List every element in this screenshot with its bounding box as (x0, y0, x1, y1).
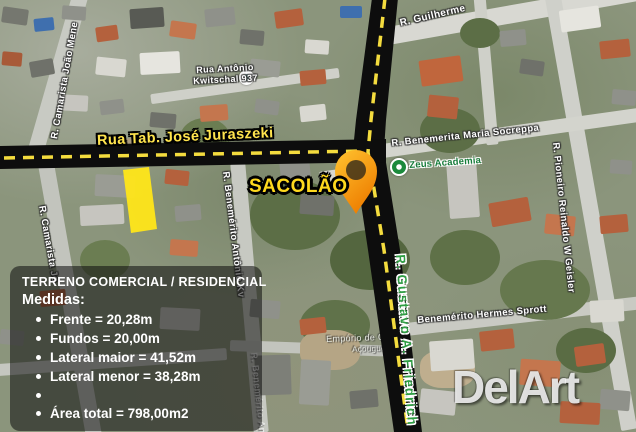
property-info-box: TERRENO COMERCIAL / RESIDENCIAL Medidas:… (10, 266, 262, 431)
measurement-row: Frente = 20,28m (22, 312, 252, 327)
bullet-icon (36, 374, 41, 379)
bullet-icon (36, 336, 41, 341)
main-street-name-label: Rua Tab. José Juraszeki (97, 125, 274, 149)
measurement-side-minor: Lateral menor = 38,28m (50, 369, 200, 384)
sacolao-label: SACOLÃO (249, 176, 348, 198)
bullet-icon (36, 355, 41, 360)
map-canvas: R. GuilhermeRua AntônioKwitschal 937R. C… (0, 0, 636, 432)
measurement-row: Lateral menor = 38,28m (22, 369, 252, 384)
measurement-row: Fundos = 20,00m (22, 331, 252, 346)
measurements-heading: Medidas: (22, 292, 252, 308)
delart-watermark: DelArt (452, 360, 578, 414)
bullet-icon (36, 393, 41, 398)
measurement-row (22, 388, 252, 402)
measurement-side-major: Lateral maior = 41,52m (50, 350, 196, 365)
bullet-icon (36, 411, 41, 416)
measurement-back: Fundos = 20,00m (50, 331, 160, 346)
measurement-front: Frente = 20,28m (50, 312, 152, 327)
bullet-icon (36, 317, 41, 322)
measurement-row: Área total = 798,00m2 (22, 406, 252, 421)
street-label: R. Gustavo A. Friedrich (394, 254, 419, 426)
property-title: TERRENO COMERCIAL / RESIDENCIAL (22, 275, 252, 289)
measurement-row: Lateral maior = 41,52m (22, 350, 252, 365)
measurement-total-area: Área total = 798,00m2 (50, 406, 188, 421)
